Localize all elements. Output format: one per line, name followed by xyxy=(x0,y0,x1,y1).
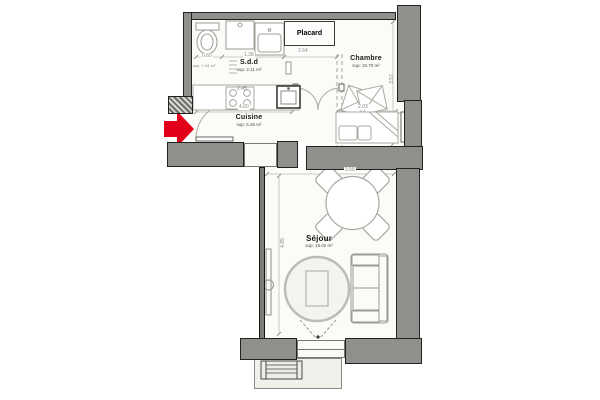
wall-right-upper xyxy=(397,5,421,102)
window-sight-lines xyxy=(300,320,336,338)
bed xyxy=(336,112,398,143)
dim-sejour-depth: 4.85 xyxy=(280,237,286,249)
sdd-door-jamb xyxy=(286,62,291,74)
sdd-area: sup: 2.11 m² xyxy=(224,67,274,72)
bathroom-sink xyxy=(255,23,284,55)
entry-area-label: sup: 1.04 m² xyxy=(193,63,215,68)
dim-chain-sdd: 1.38 xyxy=(243,52,255,58)
room-label-sdd: S.d.d sup: 2.11 m² xyxy=(224,59,274,72)
wall-hatched-block xyxy=(168,96,193,114)
door-jamb-right xyxy=(339,84,344,91)
wall-left-upper xyxy=(183,12,192,98)
room-label-cuisine: Cuisine sup: 6.26 m² xyxy=(213,114,285,127)
wall-sejour-right xyxy=(396,168,420,348)
dim-chambre-depth: 3.57 xyxy=(389,73,395,85)
dim-cuisine-width: 4.00 xyxy=(238,104,250,110)
wall-sejour-left xyxy=(259,167,265,341)
balcony-unit xyxy=(261,361,302,379)
room-label-chambre: Chambre sup: 10.70 m² xyxy=(336,55,396,68)
dim-counter-run: 2.45 xyxy=(236,86,248,92)
chambre-name: Chambre xyxy=(336,55,396,63)
sdd-name: S.d.d xyxy=(224,59,274,67)
wall-chambre-bottom xyxy=(306,146,423,170)
wall-pillar xyxy=(277,141,298,168)
wall-entry-bottom xyxy=(167,142,244,167)
dim-chain-wc: 0.60 xyxy=(201,53,213,59)
facade-window-cuisine xyxy=(244,143,277,167)
round-rug xyxy=(285,257,349,321)
sejour-name: Séjour xyxy=(288,234,350,243)
facade-window-sejour xyxy=(297,340,345,358)
placard-closet: Placard xyxy=(284,21,335,46)
entry-door-leaf xyxy=(196,137,233,141)
chambre-area: sup: 10.70 m² xyxy=(336,63,396,68)
dining-table xyxy=(326,177,379,230)
window-glass-line xyxy=(298,349,344,350)
dim-chain-placard: 2.64 xyxy=(297,48,309,54)
kitchen-sink xyxy=(277,86,300,108)
wall-chambre-right xyxy=(404,100,422,148)
dim-chambre-bed-width: 2.03 xyxy=(357,104,369,110)
washer-fixture xyxy=(226,21,254,49)
cuisine-area: sup: 6.26 m² xyxy=(213,122,285,127)
toilet-fixture xyxy=(196,23,219,54)
cuisine-name: Cuisine xyxy=(213,114,285,122)
sight-point xyxy=(316,335,319,338)
wardrobe-chair-2 xyxy=(357,86,387,115)
radiator xyxy=(264,249,274,315)
dim-sejour-width: 3.58 xyxy=(344,167,356,173)
sejour-area: sup: 18.02 m² xyxy=(288,243,350,248)
room-label-sejour: Séjour sup: 18.02 m² xyxy=(288,234,350,248)
floor-plan: Placard S.d.d sup: 2.11 m² Chambre sup: … xyxy=(0,0,600,400)
placard-label: Placard xyxy=(297,30,322,37)
sofa xyxy=(351,254,388,323)
wall-bottom-left xyxy=(240,338,297,360)
wall-top xyxy=(183,12,396,20)
wall-bottom-right xyxy=(345,338,422,364)
